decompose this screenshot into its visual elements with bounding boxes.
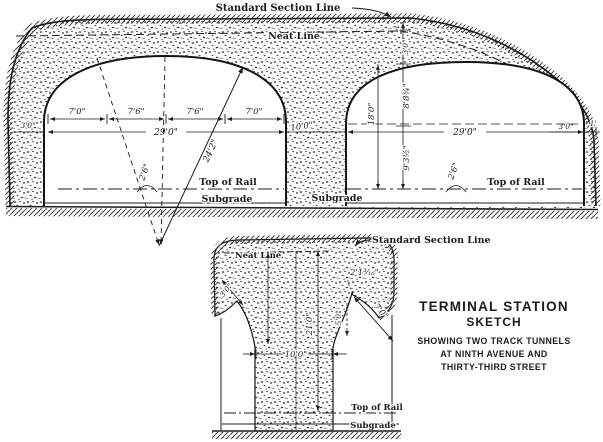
left-top-of-rail-label: Top of Rail (199, 177, 257, 188)
lower-top-of-rail-label: Top of Rail (351, 403, 403, 413)
dim-segment-1: 7'0" (68, 107, 85, 117)
dim-segment-2: 7'6" (127, 107, 144, 117)
dim-corner-offset: 2'1³⁄₁₆" (349, 268, 379, 278)
dim-crown-to-rail: 18'0" (367, 103, 377, 126)
upper-neat-line-label: Neat Line (268, 31, 320, 42)
caption-title-line1: TERMINAL STATION (419, 299, 569, 314)
dim-left-width: 29'0" (153, 128, 178, 138)
dim-surface-to-neat: 1' (392, 23, 401, 30)
dim-drop: 5'0" (334, 310, 343, 325)
caption-block: TERMINAL STATION SKETCH SHOWING TWO TRAC… (417, 299, 570, 372)
upper-standard-section-line-label: Standard Section Line (216, 3, 341, 14)
dim-springline-to-rail: 9'3½" (401, 145, 412, 170)
lower-standard-section-line-label: Standard Section Line (372, 235, 491, 246)
terminal-station-sketch-page: Standard Section Line Neat Line 7'0" 7'6… (0, 0, 603, 442)
caption-title-line2: SKETCH (466, 315, 521, 329)
lower-bottom-hatch (212, 432, 401, 439)
dim-arch-ring: 3'0" (401, 39, 410, 54)
caption-sub-line2: AT NINTH AVENUE AND (440, 349, 547, 359)
dim-right-wall: 3'0" (558, 122, 573, 131)
dim-right-width: 29'0" (452, 128, 477, 138)
dim-neat-to-rail: 21'0" (305, 313, 315, 337)
dim-crown-to-springline: 8'8¾" (401, 83, 412, 108)
dim-left-wall: 3'0" (20, 121, 35, 130)
lower-left-hatch (214, 262, 215, 316)
dim-segment-4: 7'0" (245, 107, 262, 117)
dim-lower-pier: 10'0" (285, 350, 308, 360)
lower-neat-line-label: Neat Line (235, 251, 282, 261)
dim-right-edge: 1' (590, 119, 597, 128)
right-top-of-rail-label: Top of Rail (487, 177, 545, 188)
dim-segment-3: 7'6" (186, 107, 203, 117)
left-subgrade-label: Subgrade (202, 194, 253, 205)
caption-sub-line3: THIRTY-THIRD STREET (441, 362, 547, 372)
caption-sub-line1: SHOWING TWO TRACK TUNNELS (417, 336, 570, 346)
right-subgrade-label: Subgrade (312, 193, 363, 204)
tunnel-section-drawing: Standard Section Line Neat Line 7'0" 7'6… (0, 0, 603, 442)
lower-subgrade-label: Subgrade (350, 421, 396, 431)
